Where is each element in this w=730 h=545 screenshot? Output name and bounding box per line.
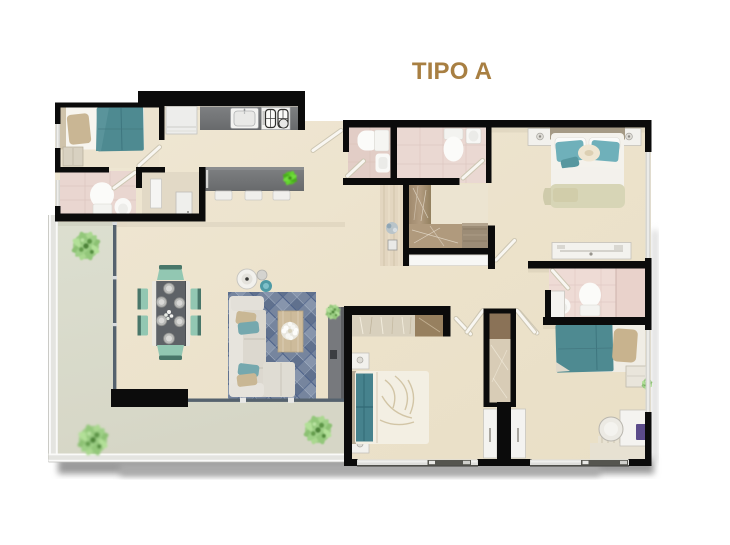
svg-text:TIPO A: TIPO A (412, 58, 492, 85)
